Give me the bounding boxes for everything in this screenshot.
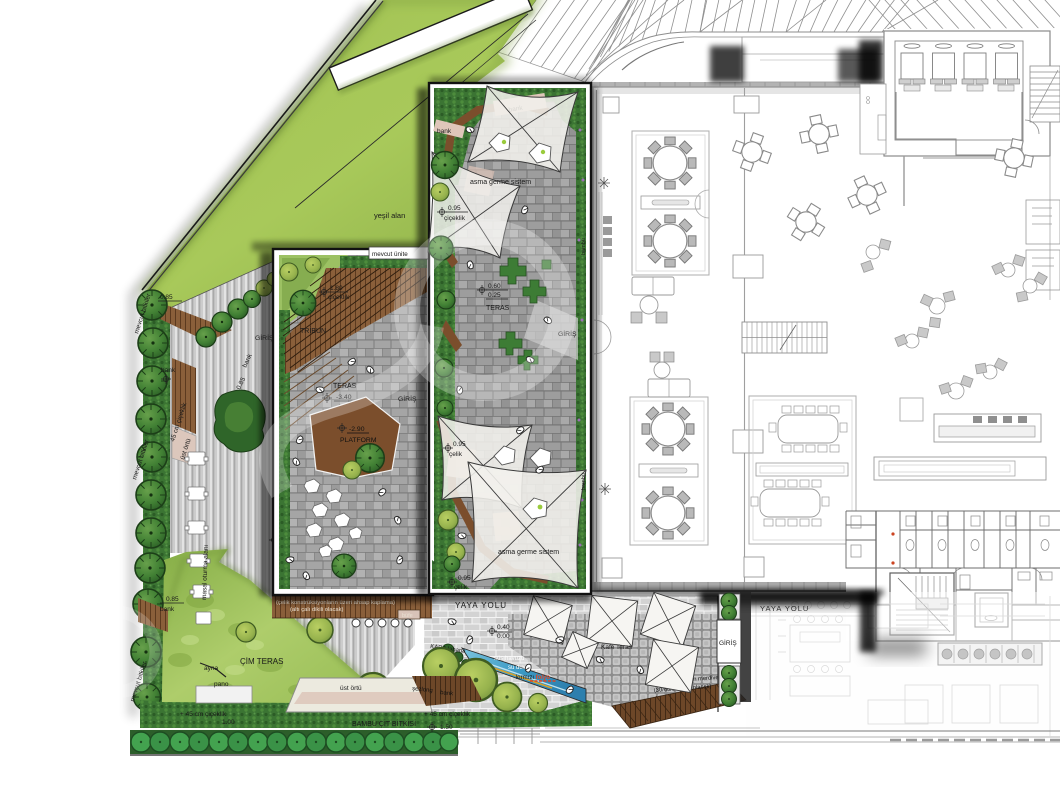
- svg-text:0.00: 0.00: [497, 633, 510, 640]
- svg-text:pano: pano: [214, 681, 229, 688]
- svg-text:bank: bank: [161, 367, 176, 374]
- svg-text:GİRİŞ: GİRİŞ: [719, 638, 737, 647]
- svg-text:çelik: çelik: [454, 584, 468, 591]
- svg-text:çiçeklık: çiçeklık: [328, 294, 350, 301]
- svg-text:çiçeklik: çiçeklik: [444, 215, 466, 222]
- svg-text:bank: bank: [437, 128, 452, 135]
- svg-text:BAMBU ÇİT BİTKİSİ: BAMBU ÇİT BİTKİSİ: [352, 719, 416, 728]
- svg-text:0.40: 0.40: [497, 624, 510, 631]
- svg-text:+ 45 cm çiçeklik: + 45 cm çiçeklik: [180, 711, 227, 718]
- svg-text:yeşil alan: yeşil alan: [374, 211, 405, 220]
- svg-text:1.50: 1.50: [440, 724, 453, 731]
- svg-text:mevcut ünite: mevcut ünite: [372, 251, 408, 258]
- svg-text:Kafe Teras: Kafe Teras: [601, 644, 633, 651]
- svg-text:bambu: bambu: [581, 473, 587, 490]
- svg-text:GİRİŞ: GİRİŞ: [398, 394, 417, 403]
- svg-text:(altı çalı dikili olacak): (altı çalı dikili olacak): [290, 607, 344, 613]
- svg-text:0.95: 0.95: [448, 205, 461, 212]
- svg-text:TERAS: TERAS: [486, 305, 510, 312]
- svg-text:kırmızı folyo: kırmızı folyo: [516, 675, 550, 681]
- svg-text:+ 45 cm çiçeklik: + 45 cm çiçeklik: [424, 711, 471, 718]
- svg-text:0.85: 0.85: [160, 294, 173, 301]
- svg-text:0.60: 0.60: [488, 283, 501, 290]
- svg-text:1.00: 1.00: [222, 719, 235, 726]
- svg-text:bank: bank: [160, 606, 175, 613]
- svg-text:PLATFORM: PLATFORM: [340, 437, 377, 444]
- svg-text:0.95: 0.95: [458, 575, 471, 582]
- svg-text:-2.90: -2.90: [349, 426, 365, 433]
- svg-text:GİRİŞ: GİRİŞ: [255, 333, 274, 342]
- svg-text:0.85: 0.85: [166, 596, 179, 603]
- svg-text:asma germe sistem: asma germe sistem: [470, 179, 531, 186]
- svg-text:0.95: 0.95: [453, 441, 466, 448]
- svg-text:üst örtü: üst örtü: [340, 685, 362, 692]
- svg-text:1.80: 1.80: [330, 285, 343, 292]
- svg-text:çelik: çelik: [449, 451, 463, 458]
- svg-text:ayna: ayna: [204, 665, 218, 672]
- svg-text:YAYA YOLU: YAYA YOLU: [455, 601, 507, 610]
- svg-text:büfe: büfe: [402, 613, 413, 619]
- svg-text:bambu: bambu: [581, 238, 587, 255]
- svg-text:TRİBUN: TRİBUN: [300, 326, 326, 335]
- svg-text:ÇİM TERAS: ÇİM TERAS: [240, 657, 283, 666]
- svg-text:asma germe sistem: asma germe sistem: [498, 549, 559, 556]
- svg-text:0.25: 0.25: [488, 292, 501, 299]
- svg-text:süs havuzu: süs havuzu: [494, 656, 524, 662]
